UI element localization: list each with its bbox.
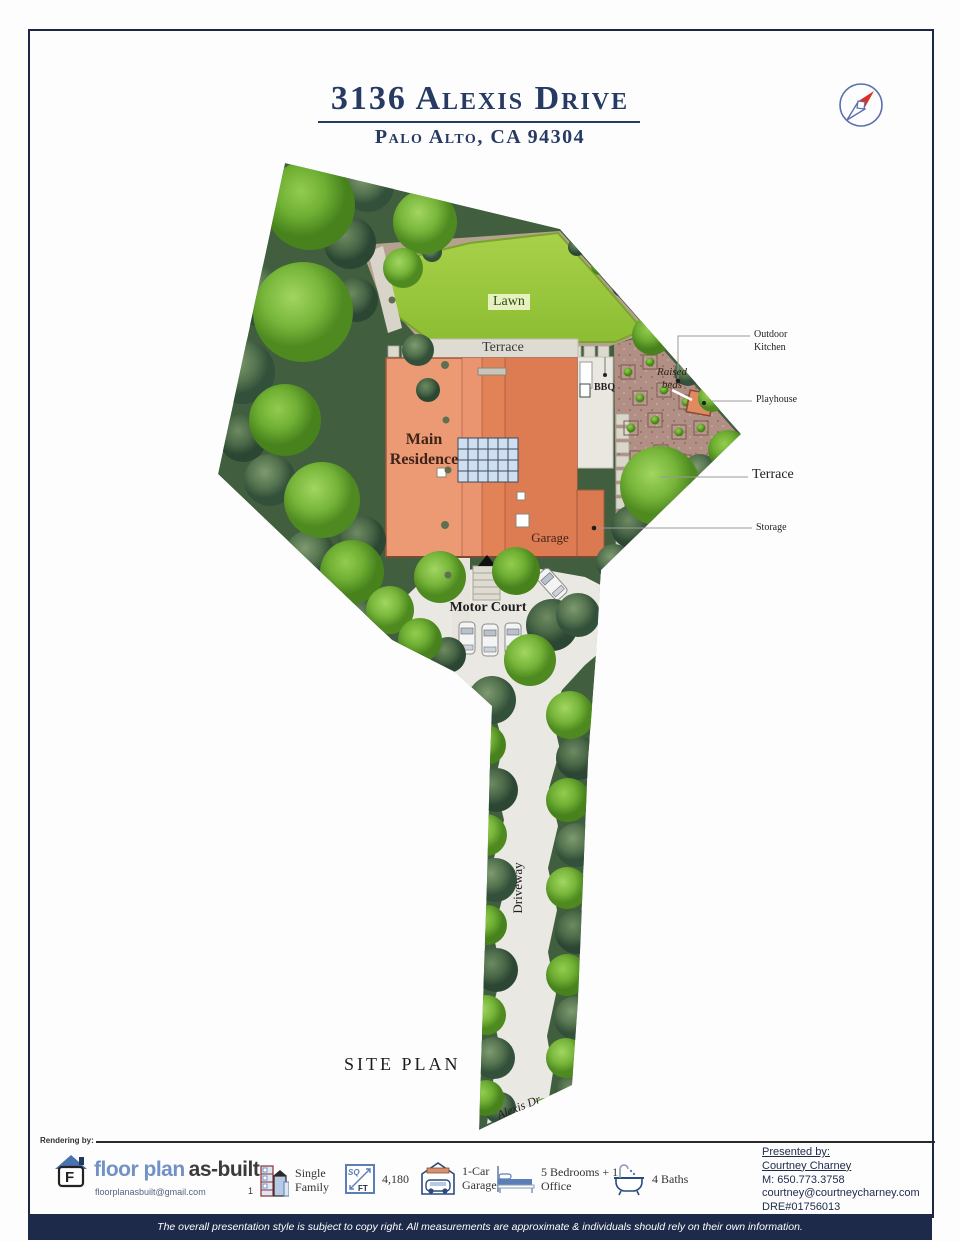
stat-sqft: SQ FT 4,180 [344,1163,409,1195]
storage-label: Storage [756,522,787,533]
bed-icon [495,1164,535,1194]
house-logo-icon: F [52,1152,90,1188]
bbq-label: BBQ [594,382,615,393]
outdoor-kitchen-label: Outdoor Kitchen [754,328,804,354]
terrace-right-label: Terrace [752,467,794,483]
presented-heading: Presented by: [762,1146,937,1160]
stat-prefix: 1 [248,1186,253,1196]
agent-email: courtney@courtneycharney.com [762,1187,937,1201]
disclaimer-bar: The overall presentation style is subjec… [28,1214,932,1240]
logo-brand-blue: floor plan [94,1158,185,1182]
floorplan-logo: F floor plan as-built [52,1152,259,1188]
logo-email: floorplanasbuilt@gmail.com [95,1187,206,1197]
svg-text:F: F [65,1169,74,1186]
svg-text:FT: FT [358,1184,368,1193]
main-residence-label: Main Residence [378,430,470,470]
stat-single-family: 1 Single Family [248,1162,345,1198]
agent-dre: DRE#01756013 [762,1201,937,1215]
rendering-by-label: Rendering by: [40,1136,94,1145]
motor-court-label: Motor Court [438,600,538,616]
bath-icon [612,1162,646,1196]
garage-icon [420,1160,456,1196]
disclaimer-text: The overall presentation style is subjec… [157,1221,803,1233]
stat-value: 4,180 [382,1172,409,1186]
svg-text:SQ: SQ [348,1168,360,1177]
site-plan-rendering [0,0,960,1242]
site-plan-page: 3136 Alexis Drive Palo Alto, CA 94304 [0,0,960,1242]
garage-label: Garage [520,530,580,546]
presented-by-block: Presented by: Courtney Charney M: 650.77… [762,1146,937,1215]
lawn-label: Lawn [488,294,530,310]
site-plan-title: SITE PLAN [344,1054,461,1075]
stat-label: Single Family [295,1166,345,1195]
stat-label: 4 Baths [652,1172,688,1186]
playhouse-label: Playhouse [756,394,797,405]
driveway-label: Driveway [510,860,526,916]
raised-beds-label: Raised beds [648,366,696,392]
stat-baths: 4 Baths [612,1162,688,1196]
agent-mobile: M: 650.773.3758 [762,1174,937,1188]
sqft-icon: SQ FT [344,1163,376,1195]
agent-name: Courtney Charney [762,1160,937,1174]
terrace-top-label: Terrace [428,340,578,356]
footer-divider [96,1141,935,1143]
building-icon [259,1162,289,1198]
